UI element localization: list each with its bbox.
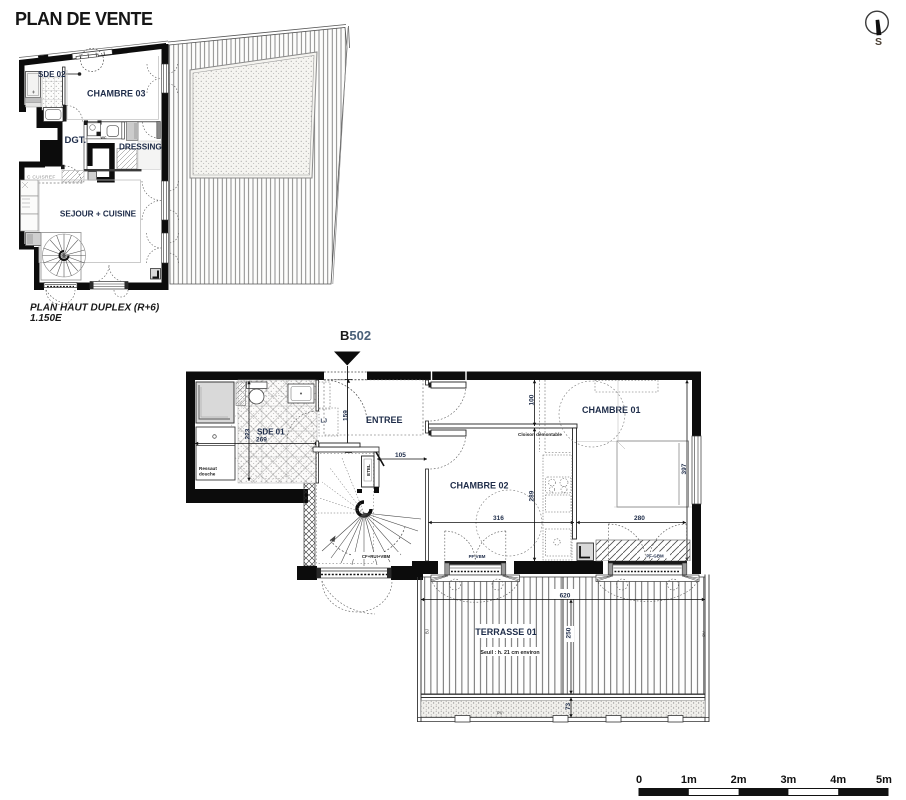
svg-text:280: 280 — [634, 515, 645, 522]
svg-text:0: 0 — [636, 774, 642, 786]
svg-text:ENTREE: ENTREE — [366, 415, 403, 425]
svg-text:PLAN HAUT DUPLEX (R+6): PLAN HAUT DUPLEX (R+6) — [30, 303, 160, 314]
svg-text:DRESSING: DRESSING — [119, 143, 162, 152]
svg-text:PF-VBM: PF-VBM — [469, 554, 486, 559]
svg-text:2m: 2m — [731, 774, 747, 786]
svg-text:BJ: BJ — [425, 629, 430, 634]
svg-text:159: 159 — [343, 410, 350, 421]
svg-text:WC: WC — [101, 136, 107, 140]
svg-text:100: 100 — [529, 394, 536, 405]
svg-text:1.150E: 1.150E — [30, 313, 62, 324]
svg-text:Seuil : h. 21 cm environ: Seuil : h. 21 cm environ — [480, 650, 539, 656]
svg-text:ETEL: ETEL — [366, 464, 371, 476]
svg-text:620: 620 — [560, 593, 571, 600]
svg-text:B502: B502 — [340, 328, 371, 343]
svg-text:douche: douche — [199, 472, 216, 477]
svg-text:250: 250 — [566, 627, 573, 638]
svg-text:Ressaut: Ressaut — [199, 466, 217, 471]
svg-text:CHAMBRE 02: CHAMBRE 02 — [450, 481, 509, 491]
svg-text:SEJOUR + CUISINE: SEJOUR + CUISINE — [60, 210, 137, 219]
svg-text:PLAN DE VENTE: PLAN DE VENTE — [15, 9, 153, 29]
svg-text:PV: PV — [702, 631, 707, 637]
svg-text:3m: 3m — [780, 774, 796, 786]
svg-text:DGT.: DGT. — [65, 135, 87, 146]
svg-text:5m: 5m — [876, 774, 892, 786]
svg-text:105: 105 — [395, 452, 406, 459]
svg-text:289: 289 — [529, 490, 536, 501]
svg-text:CHAMBRE 03: CHAMBRE 03 — [87, 89, 146, 99]
svg-text:4m: 4m — [830, 774, 846, 786]
svg-text:397: 397 — [681, 463, 688, 474]
svg-text:316: 316 — [493, 515, 504, 522]
svg-text:SDE 02: SDE 02 — [38, 70, 66, 79]
svg-text:73: 73 — [565, 703, 572, 711]
svg-text:CHAMBRE 01: CHAMBRE 01 — [582, 405, 641, 415]
svg-text:223: 223 — [245, 428, 252, 439]
svg-text:PV: PV — [497, 711, 503, 716]
svg-text:SDE 01: SDE 01 — [257, 428, 285, 437]
svg-text:CF+RUI+VBM: CF+RUI+VBM — [362, 554, 391, 559]
svg-text:TERRASSE 01: TERRASSE 01 — [475, 627, 537, 637]
svg-text:Cloison démontable: Cloison démontable — [518, 432, 562, 437]
svg-text:S: S — [875, 36, 882, 48]
svg-text:1m: 1m — [681, 774, 697, 786]
svg-text:269: 269 — [256, 437, 267, 444]
